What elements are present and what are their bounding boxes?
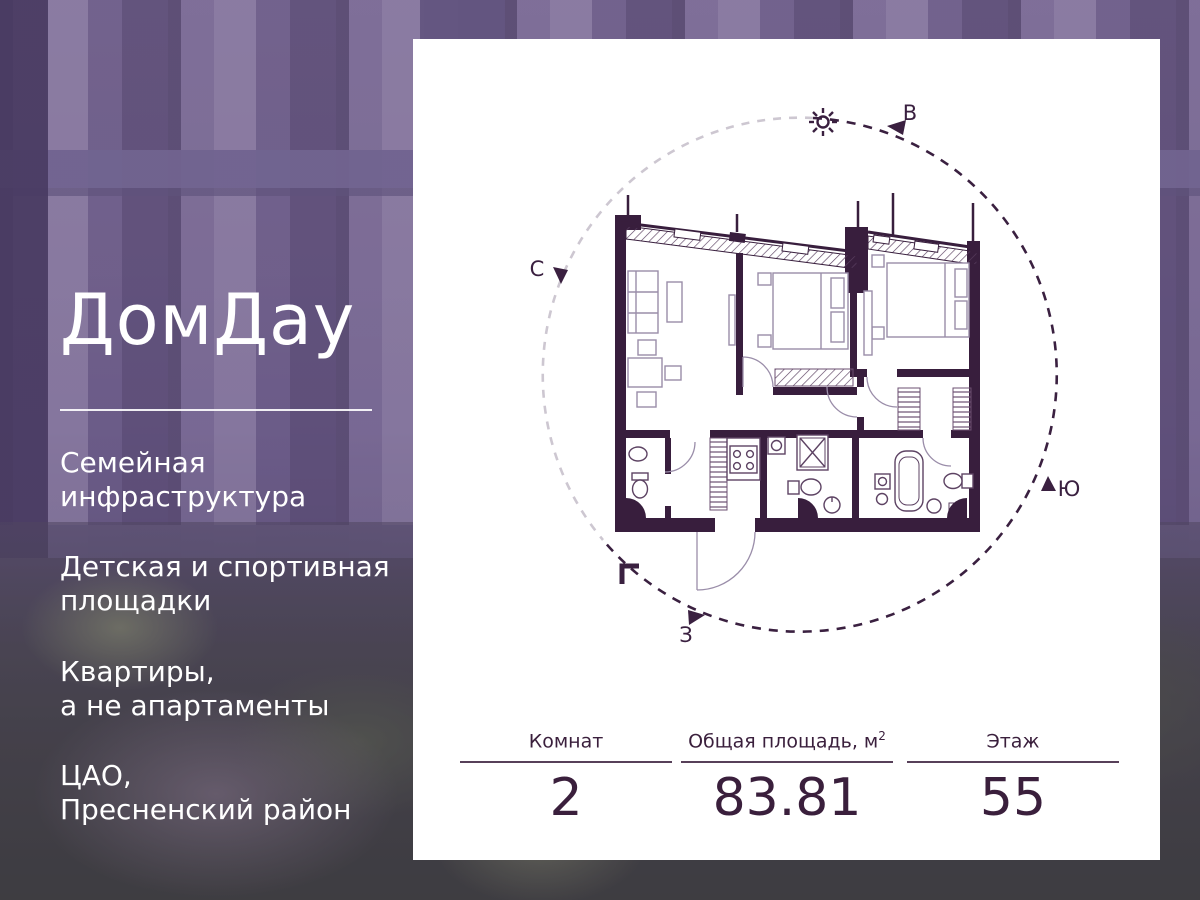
floorplan-card: С В Ю З (413, 39, 1160, 860)
stat-area-label: Общая площадь, м2 (681, 725, 893, 752)
stat-rooms: Комнат 2 (460, 725, 672, 826)
bedroom1-wardrobe (775, 369, 853, 386)
feature-family-infrastructure: Семейная инфраструктура (60, 446, 420, 514)
kitchen-cabinet-strip (710, 438, 727, 510)
feature-district: ЦАО, Пресненский район (60, 759, 420, 827)
washer-icon (768, 437, 785, 454)
dressing-closet-left (898, 388, 920, 430)
stat-rooms-value: 2 (460, 771, 672, 826)
living-room-furniture (628, 271, 735, 407)
chair (665, 366, 681, 380)
stat-area-rule (681, 761, 893, 763)
compass-label-west: З (679, 623, 692, 647)
feature-flats-not-apartments: Квартиры, а не апартаменты (60, 655, 420, 723)
sun-icon (809, 108, 837, 136)
sink-icon (877, 494, 888, 505)
south-arrow-icon (1041, 476, 1056, 491)
sofa (628, 271, 658, 333)
floorplan-drawing: С В Ю З (525, 85, 1125, 655)
toilet-icon (633, 480, 648, 498)
stat-rooms-label: Комнат (460, 725, 672, 752)
toilet-icon (801, 479, 821, 495)
stat-rooms-rule (460, 761, 672, 763)
sink-icon (927, 499, 941, 513)
east-arrow-icon (887, 120, 906, 135)
feature-list: Семейная инфраструктура Детская и спорти… (60, 446, 420, 863)
tall-cabinet (864, 291, 872, 355)
stat-area: Общая площадь, м2 83.81 (681, 725, 893, 826)
stove-icon (730, 446, 757, 473)
entrance-door-arc (697, 532, 755, 590)
stat-floor-rule (907, 761, 1119, 763)
dressing-closet-right (953, 388, 971, 430)
stat-floor-value: 55 (907, 771, 1119, 826)
washbasin-icon (629, 447, 647, 461)
cabinet (667, 282, 682, 322)
compass-label-north: С (530, 257, 545, 281)
left-text-panel: ДомДау Семейная инфраструктура Детская и… (60, 0, 420, 900)
bedroom2-furniture (864, 255, 969, 355)
domdau-logo: ДомДау (60, 285, 355, 355)
logo-divider-line (60, 409, 372, 411)
feature-playgrounds: Детская и спортивная площадки (60, 550, 420, 618)
tv-unit (729, 295, 735, 345)
kitchen-fixtures (727, 438, 760, 480)
west-arrow-icon (688, 610, 705, 625)
stat-floor-label: Этаж (907, 725, 1119, 752)
desk (628, 358, 662, 387)
bedroom1-furniture (758, 273, 848, 349)
washing-machine-icon (875, 474, 890, 489)
compass-label-south: Ю (1058, 477, 1081, 501)
toilet-icon (944, 474, 962, 489)
wc-fixtures (629, 447, 648, 498)
stat-floor: Этаж 55 (907, 725, 1119, 826)
stat-area-value: 83.81 (681, 771, 893, 826)
